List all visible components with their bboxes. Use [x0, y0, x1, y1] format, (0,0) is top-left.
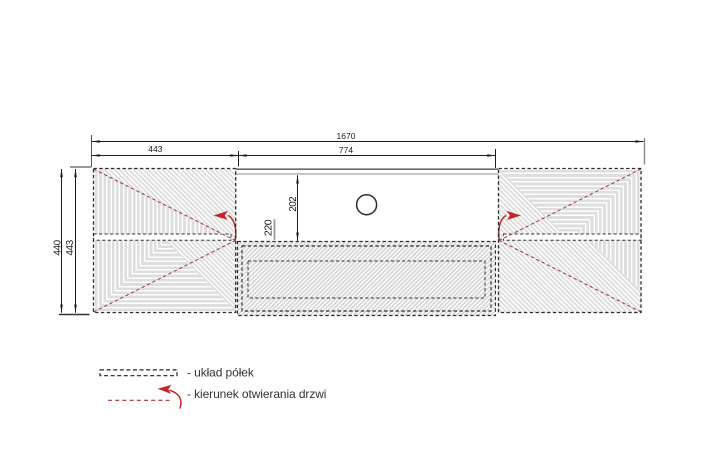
svg-text:443: 443 [148, 144, 162, 154]
svg-text:- układ półek: - układ półek [187, 365, 255, 379]
svg-text:443: 443 [65, 239, 76, 255]
svg-text:1670: 1670 [337, 131, 356, 141]
svg-text:202: 202 [288, 196, 299, 212]
svg-text:774: 774 [339, 145, 353, 155]
svg-text:- kierunek otwierania drzwi: - kierunek otwierania drzwi [187, 387, 326, 401]
svg-text:220: 220 [263, 219, 275, 236]
svg-text:440: 440 [53, 239, 64, 255]
